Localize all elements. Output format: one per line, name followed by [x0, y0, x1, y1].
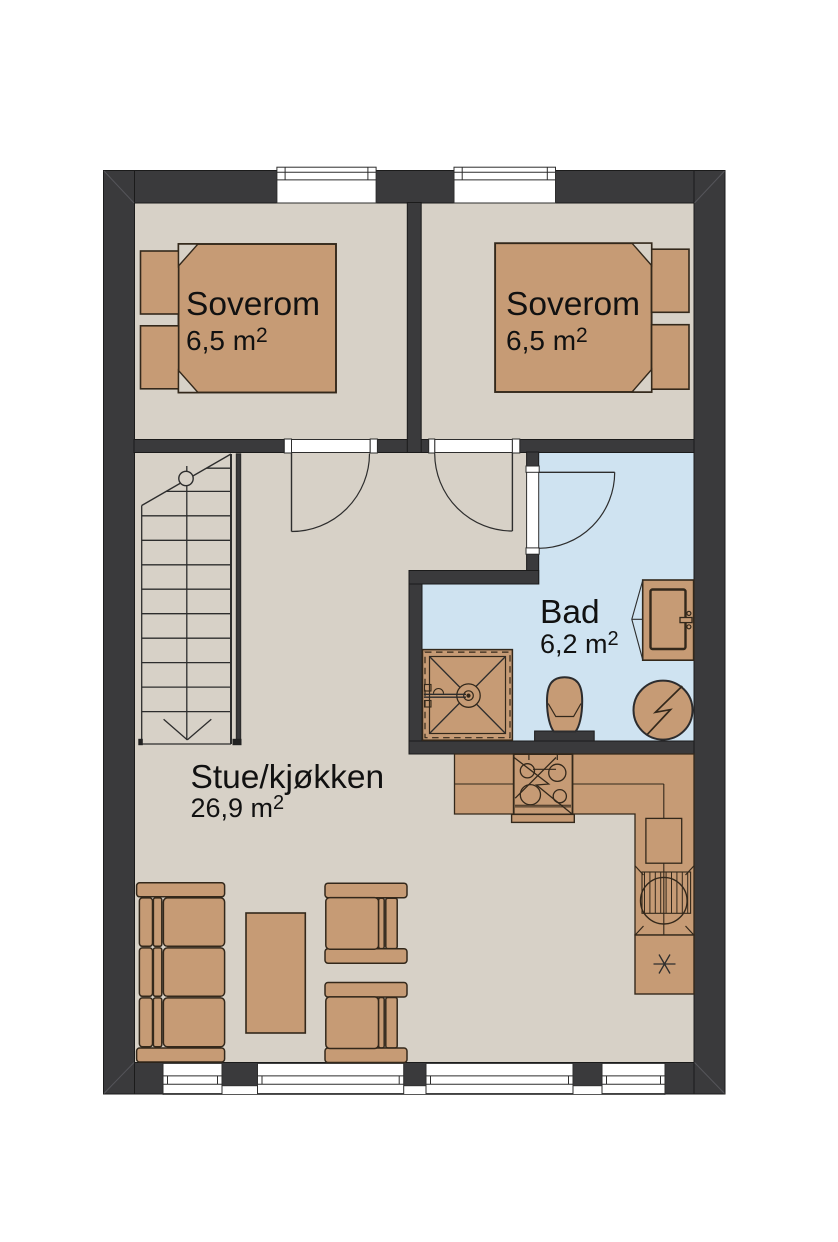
svg-text:26,9 m2: 26,9 m2: [191, 792, 285, 823]
svg-text:Soverom: Soverom: [506, 286, 640, 323]
svg-text:Stue/kjøkken: Stue/kjøkken: [191, 759, 385, 796]
svg-text:Soverom: Soverom: [186, 286, 320, 323]
svg-text:6,2 m2: 6,2 m2: [540, 628, 619, 659]
svg-text:6,5 m2: 6,5 m2: [186, 324, 268, 356]
svg-text:6,5 m2: 6,5 m2: [506, 324, 588, 356]
svg-text:Bad: Bad: [540, 594, 600, 631]
